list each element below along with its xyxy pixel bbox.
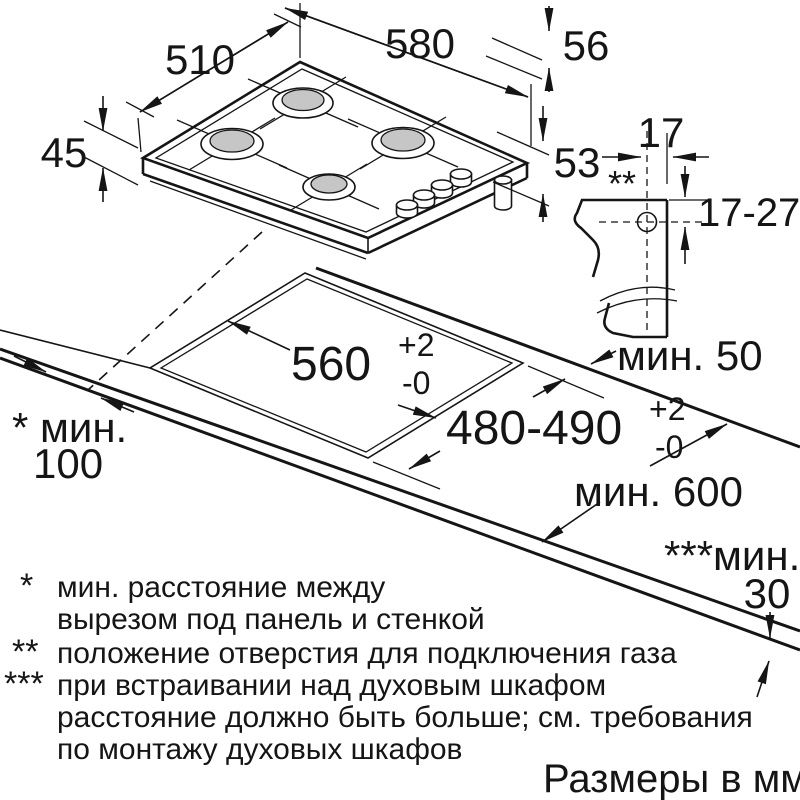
footnote-line: расстояние должно быть больше; см. требо…: [57, 701, 753, 734]
installation-diagram: 510 580 56 53 45: [0, 0, 800, 800]
control-knob: [451, 169, 472, 187]
tolerance-plus: +2: [398, 327, 434, 363]
dimension-value-min100: 100: [33, 440, 103, 487]
footnote-line: положение отверстия для подключения газа: [57, 637, 677, 670]
dimension-label-560: 560: [291, 338, 371, 391]
burner-front: [303, 174, 355, 200]
burner-back: [273, 88, 333, 118]
footnote-line: по монтажу духовых шкафов: [57, 733, 463, 766]
dimension-label-53: 53: [554, 139, 601, 186]
burner-right: [372, 128, 434, 159]
dimension-label-min600: мин. 600: [574, 468, 743, 515]
dimension-label-45: 45: [41, 129, 88, 176]
dimension-label-580: 580: [385, 20, 455, 67]
dimension-label-56: 56: [563, 22, 610, 69]
installation-diagram-page: 510 580 56 53 45: [0, 0, 800, 800]
dimension-label-17: 17: [638, 109, 685, 156]
dimension-label-480-490: 480-490: [446, 402, 622, 455]
control-knob: [397, 200, 418, 218]
burner-left: [201, 129, 263, 160]
units-note: Размеры в мм: [543, 757, 800, 800]
footnote-line: вырезом под панель и стенкой: [57, 603, 485, 636]
tolerance-minus: -0: [655, 429, 683, 465]
dimension-label-510: 510: [165, 36, 235, 83]
tolerance-minus: -0: [402, 365, 430, 401]
dimension-label-min50: мин. 50: [617, 332, 763, 379]
footnote-line: мин. расстояние между: [57, 571, 385, 604]
dimension-label-17-27: 17-27: [698, 191, 800, 235]
footnote-line: при встраивании над духовым шкафом: [57, 669, 606, 702]
footnote-marker: *: [20, 567, 33, 605]
dim-min-50: мин. 50: [591, 332, 763, 379]
tolerance-plus: +2: [649, 391, 685, 427]
gas-hole-footnote-marker: **: [608, 163, 636, 204]
dimension-value-min30: 30: [744, 570, 791, 617]
gas-connection-pipe: [495, 176, 512, 210]
footnote-marker: ***: [4, 665, 44, 703]
